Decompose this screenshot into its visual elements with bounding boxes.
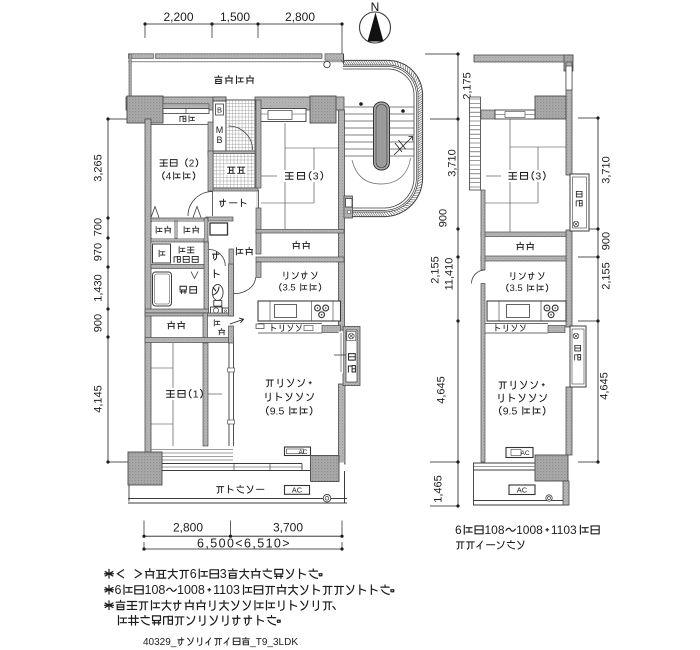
svg-text:3,710: 3,710 — [447, 149, 459, 177]
svg-text:AC: AC — [298, 449, 307, 456]
svg-text:9.5: 9.5 — [503, 406, 518, 418]
svg-text:4,645: 4,645 — [436, 376, 448, 404]
svg-text:1008: 1008 — [177, 583, 205, 597]
svg-text:900: 900 — [93, 314, 105, 332]
svg-text:4,145: 4,145 — [93, 385, 105, 413]
svg-text:108: 108 — [485, 523, 505, 537]
svg-text:1,465: 1,465 — [433, 475, 445, 503]
svg-text:AC: AC — [292, 486, 303, 495]
svg-text:B: B — [217, 106, 222, 115]
svg-text:1103: 1103 — [213, 583, 240, 597]
svg-text:1008: 1008 — [516, 523, 543, 537]
svg-text:6: 6 — [455, 523, 462, 537]
svg-text:2,155: 2,155 — [601, 262, 613, 290]
svg-text:700: 700 — [93, 218, 105, 236]
svg-text:4: 4 — [166, 171, 172, 182]
svg-text:2,155: 2,155 — [430, 256, 442, 284]
svg-text:11,410: 11,410 — [444, 258, 456, 291]
svg-text:900: 900 — [438, 209, 450, 227]
svg-text:B: B — [216, 135, 222, 145]
svg-text:3,700: 3,700 — [273, 521, 303, 535]
svg-text:3.5: 3.5 — [283, 283, 296, 294]
svg-text:9.5: 9.5 — [270, 406, 285, 418]
svg-text:N: N — [371, 0, 380, 14]
svg-text:2,200: 2,200 — [163, 10, 193, 24]
svg-text:1,500: 1,500 — [220, 10, 250, 24]
svg-text:2,800: 2,800 — [285, 10, 315, 24]
svg-text:2,800: 2,800 — [173, 521, 203, 535]
svg-text:3: 3 — [220, 567, 227, 581]
svg-text:1,430: 1,430 — [93, 274, 105, 302]
svg-text:6: 6 — [190, 567, 197, 581]
svg-text:2,175: 2,175 — [462, 72, 474, 100]
svg-text:900: 900 — [601, 232, 613, 250]
svg-text:40329_: 40329_ — [143, 637, 177, 648]
svg-text:2: 2 — [189, 158, 195, 169]
svg-text:1103: 1103 — [551, 523, 577, 537]
svg-text:108: 108 — [145, 583, 166, 597]
svg-text:3,710: 3,710 — [601, 156, 613, 184]
svg-text:6: 6 — [115, 583, 122, 597]
svg-text:3.5: 3.5 — [510, 283, 523, 294]
svg-text:4,645: 4,645 — [599, 372, 611, 400]
svg-text:3,265: 3,265 — [93, 154, 105, 182]
svg-text:AC: AC — [517, 486, 528, 495]
svg-text:_T9_3LDK: _T9_3LDK — [249, 637, 298, 648]
svg-text:970: 970 — [93, 243, 105, 261]
svg-text:3: 3 — [313, 171, 319, 183]
svg-text:6,500<6,510>: 6,500<6,510> — [197, 537, 291, 551]
svg-text:3: 3 — [535, 171, 541, 183]
svg-text:AC: AC — [520, 450, 529, 457]
svg-text:M: M — [216, 125, 224, 135]
svg-text:1: 1 — [193, 389, 199, 401]
